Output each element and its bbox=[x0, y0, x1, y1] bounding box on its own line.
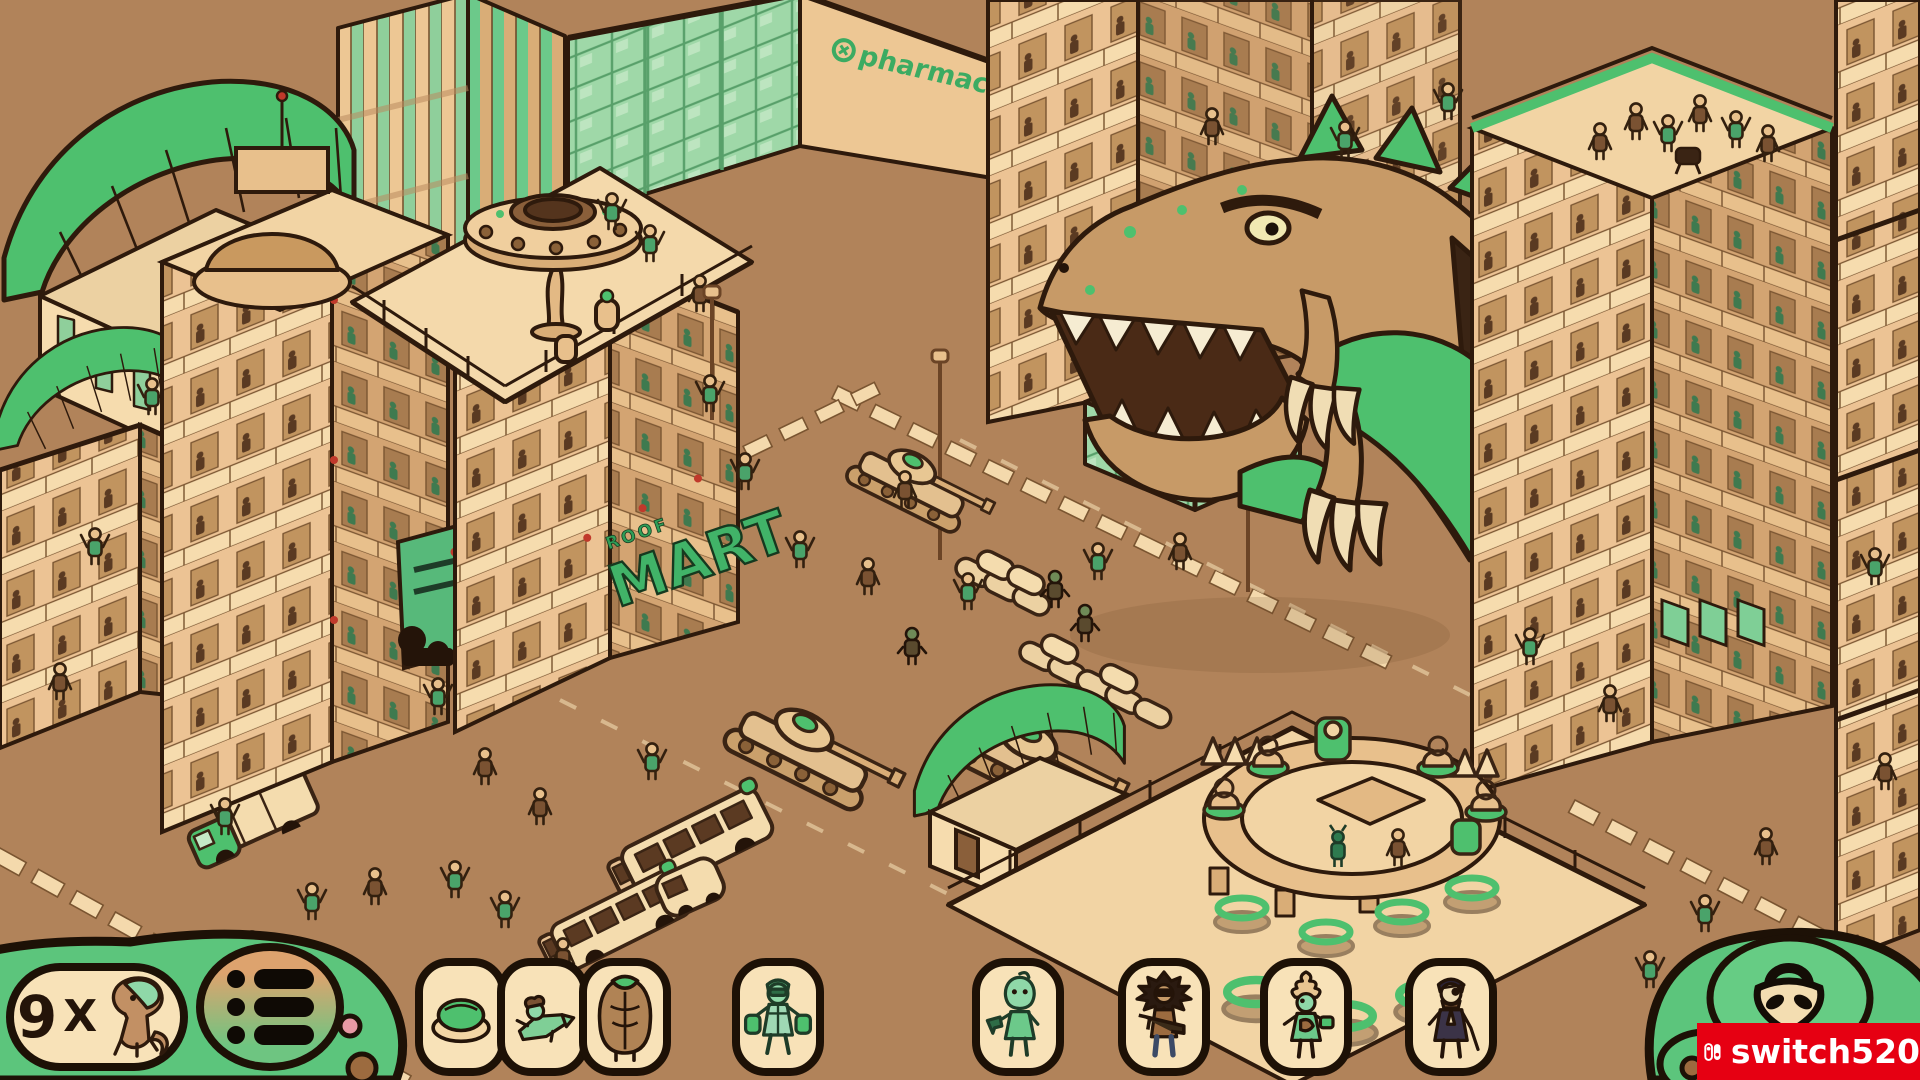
bear-creature-icon bbox=[589, 969, 661, 1065]
game-stage: pharmacy bbox=[0, 0, 1920, 1080]
alien-creature-icon bbox=[103, 974, 177, 1060]
target-card-alien-raygun[interactable] bbox=[972, 958, 1064, 1076]
found-tray bbox=[415, 958, 671, 1076]
scuba-diver-icon bbox=[742, 969, 814, 1065]
watermark-text: switch520 bbox=[1731, 1032, 1920, 1071]
target-card-icecream-head[interactable] bbox=[1260, 958, 1352, 1076]
target-card-machine-gunner[interactable] bbox=[1118, 958, 1210, 1076]
alien-raygun-icon bbox=[982, 969, 1054, 1065]
remaining-counter: 9 X bbox=[6, 963, 188, 1071]
icecream-head-icon bbox=[1270, 969, 1342, 1065]
target-card-pirate[interactable] bbox=[1405, 958, 1497, 1076]
remaining-count: 9 bbox=[17, 988, 57, 1046]
menu-button[interactable] bbox=[196, 943, 344, 1071]
machine-gunner-icon bbox=[1128, 969, 1200, 1065]
nintendo-switch-logo bbox=[1703, 1030, 1723, 1074]
remaining-times: X bbox=[63, 995, 97, 1039]
target-card-scuba-diver[interactable] bbox=[732, 958, 824, 1076]
found-card-button[interactable] bbox=[415, 958, 507, 1076]
lying-alien-icon bbox=[507, 969, 579, 1065]
menu-list-icon bbox=[224, 965, 316, 1049]
hud: 9 X bbox=[0, 0, 1920, 1080]
green-button-icon bbox=[425, 969, 497, 1065]
watermark: switch520 bbox=[1697, 1023, 1920, 1080]
pirate-icon bbox=[1415, 969, 1487, 1065]
found-card-bear[interactable] bbox=[579, 958, 671, 1076]
found-card-lying-alien[interactable] bbox=[497, 958, 589, 1076]
